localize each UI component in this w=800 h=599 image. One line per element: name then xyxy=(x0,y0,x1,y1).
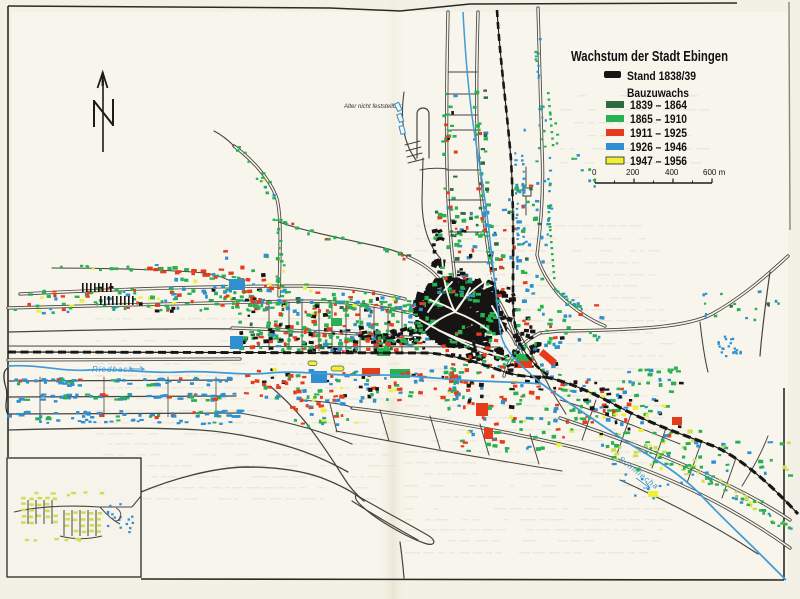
svg-text:Stand 1838/39: Stand 1838/39 xyxy=(627,69,696,83)
svg-text:0: 0 xyxy=(592,168,597,177)
svg-text:1839 – 1864: 1839 – 1864 xyxy=(630,98,687,112)
svg-text:1926 – 1946: 1926 – 1946 xyxy=(630,140,687,154)
svg-text:Wachstum der Stadt Ebingen: Wachstum der Stadt Ebingen xyxy=(571,49,728,65)
svg-text:200: 200 xyxy=(626,168,640,177)
svg-text:Riedbach: Riedbach xyxy=(92,365,134,374)
svg-text:1865 – 1910: 1865 – 1910 xyxy=(630,112,687,126)
svg-text:600 m: 600 m xyxy=(703,168,726,177)
svg-text:1947 – 1956: 1947 – 1956 xyxy=(630,154,687,168)
svg-text:1911 – 1925: 1911 – 1925 xyxy=(630,126,687,140)
svg-text:Alter nicht feststellbar: Alter nicht feststellbar xyxy=(343,104,402,110)
svg-text:400: 400 xyxy=(665,168,679,177)
